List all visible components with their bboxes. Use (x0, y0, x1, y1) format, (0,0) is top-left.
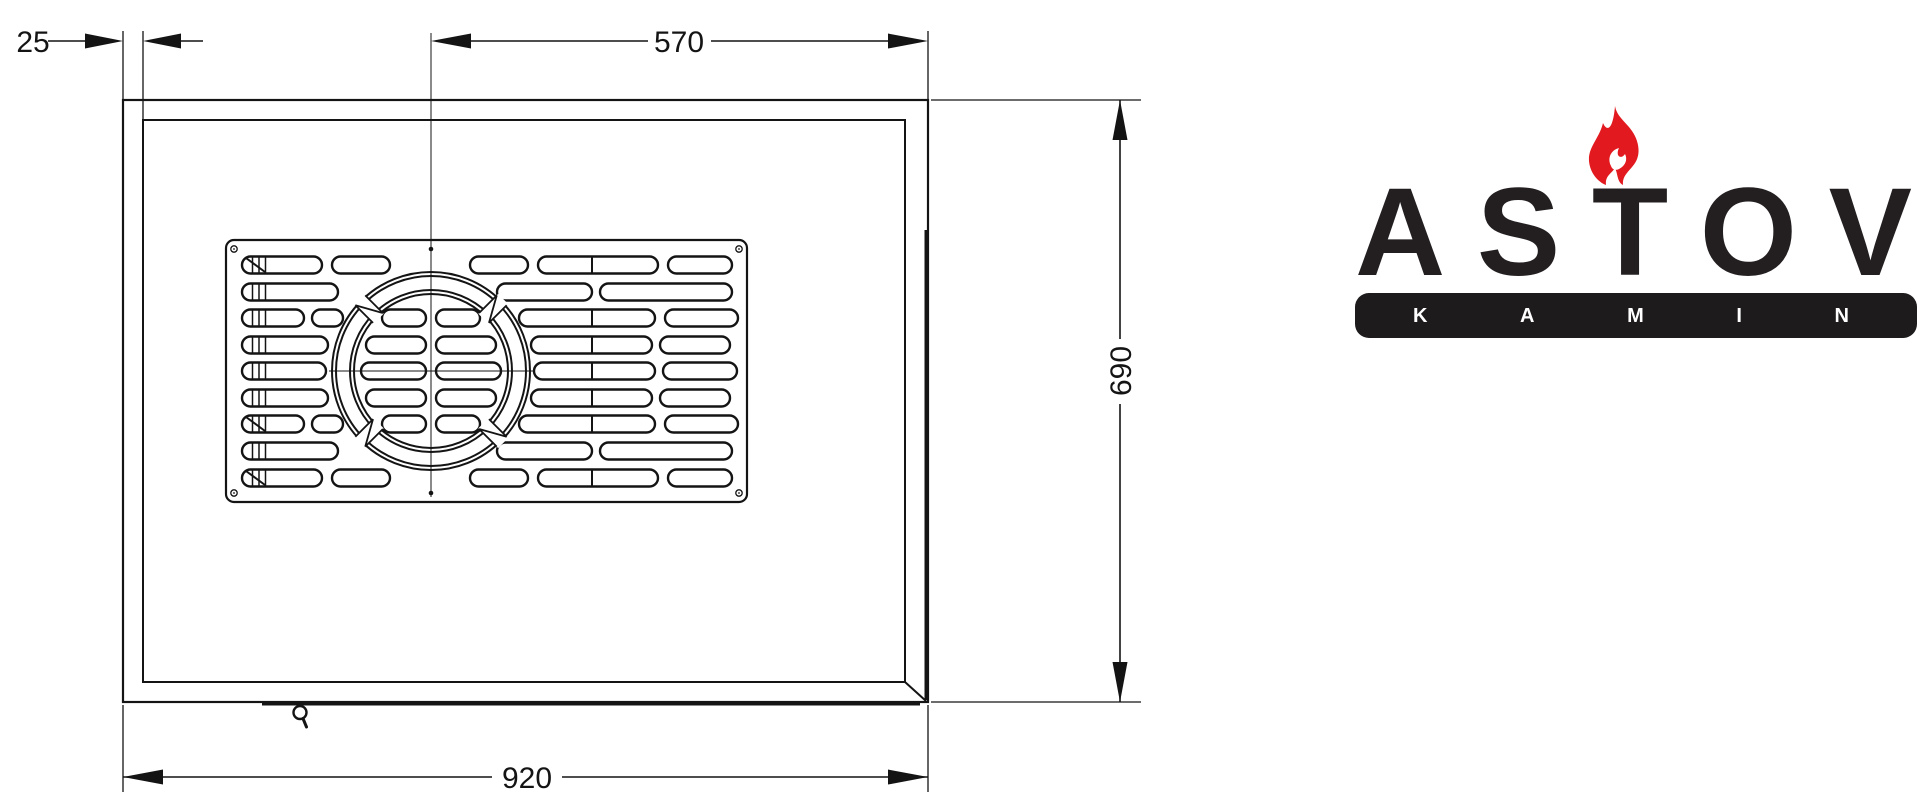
subtitle-letter: I (1736, 306, 1742, 326)
dimension-wall-25: 25 (16, 26, 203, 119)
dimension-width-920: 920 (123, 705, 928, 795)
brand-subtitle-bar: K A M I N (1355, 293, 1917, 338)
logo-letter: O (1700, 170, 1797, 295)
logo-letter: V (1829, 170, 1912, 295)
subtitle-letter: M (1627, 306, 1644, 326)
dimension-flue-570: 570 (431, 26, 928, 99)
dim-label-570: 570 (654, 26, 704, 59)
subtitle-letter: N (1835, 306, 1849, 326)
dim-label-25: 25 (16, 26, 49, 59)
logo-letter: A (1355, 170, 1445, 295)
brand-logo-astov: A S T O V (1355, 170, 1912, 295)
technical-drawing: 25 570 690 (0, 0, 1200, 804)
page: { "title": "ASTOV kamin top view technic… (0, 0, 1927, 804)
door-knob (294, 706, 307, 727)
subtitle-letter: K (1413, 306, 1427, 326)
dimension-depth-690: 690 (931, 100, 1141, 702)
dim-label-920: 920 (502, 762, 552, 795)
dim-label-690: 690 (1105, 346, 1138, 396)
subtitle-letter: A (1520, 306, 1534, 326)
logo-letter: T (1592, 170, 1668, 295)
logo-letter: S (1477, 170, 1560, 295)
